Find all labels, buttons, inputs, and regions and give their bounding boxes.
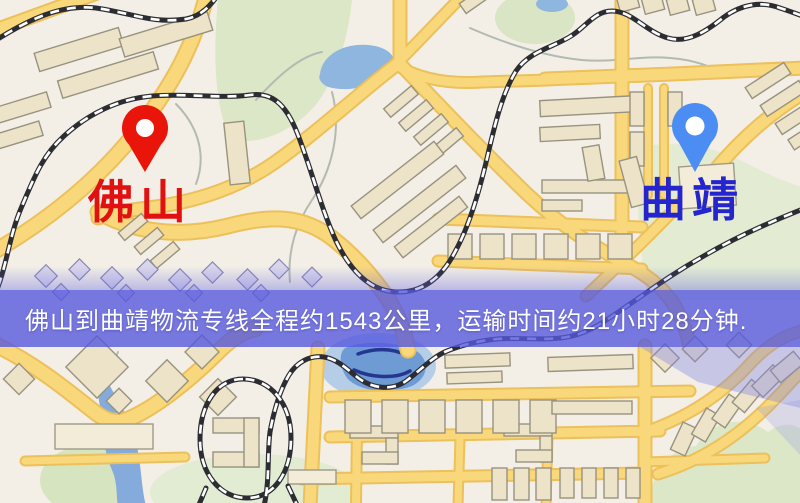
building bbox=[514, 468, 529, 500]
building bbox=[55, 424, 153, 449]
building bbox=[604, 468, 618, 498]
route-info-text: 佛山到曲靖物流专线全程约1543公里，运输时间约21小时28分钟. bbox=[25, 301, 747, 336]
building bbox=[540, 124, 601, 141]
building bbox=[382, 400, 408, 433]
red-pin-hole bbox=[136, 119, 154, 137]
origin-label: 佛山 bbox=[87, 176, 192, 228]
building bbox=[542, 200, 582, 211]
building bbox=[456, 400, 482, 433]
building bbox=[548, 355, 633, 372]
building bbox=[608, 234, 632, 259]
building bbox=[630, 92, 644, 126]
route-info-banner: 佛山到曲靖物流专线全程约1543公里，运输时间约21小时28分钟. bbox=[0, 290, 800, 347]
building bbox=[244, 418, 259, 467]
building bbox=[552, 401, 632, 414]
building bbox=[345, 400, 371, 433]
building bbox=[560, 468, 574, 498]
building bbox=[512, 234, 536, 259]
building bbox=[419, 400, 445, 433]
building bbox=[576, 234, 600, 259]
building bbox=[493, 400, 519, 433]
building bbox=[544, 234, 568, 259]
blue-pin-hole bbox=[686, 117, 705, 136]
building bbox=[445, 353, 510, 368]
building bbox=[536, 468, 551, 500]
building bbox=[582, 468, 596, 498]
road bbox=[645, 458, 765, 462]
road bbox=[25, 457, 185, 461]
building bbox=[626, 468, 640, 498]
road bbox=[458, 438, 460, 503]
destination-label: 曲靖 bbox=[640, 174, 744, 226]
map-canvas: 佛山 曲靖 bbox=[0, 0, 800, 503]
building bbox=[362, 452, 398, 464]
building bbox=[542, 180, 634, 193]
building bbox=[447, 371, 502, 384]
building bbox=[516, 450, 552, 462]
building bbox=[492, 468, 507, 500]
road bbox=[330, 391, 690, 397]
building bbox=[480, 234, 504, 259]
logistics-map-image: 佛山 曲靖 佛山到曲靖物流专线全程约1543公里，运输时间约21小时28分钟. bbox=[0, 0, 800, 503]
building bbox=[288, 470, 336, 484]
